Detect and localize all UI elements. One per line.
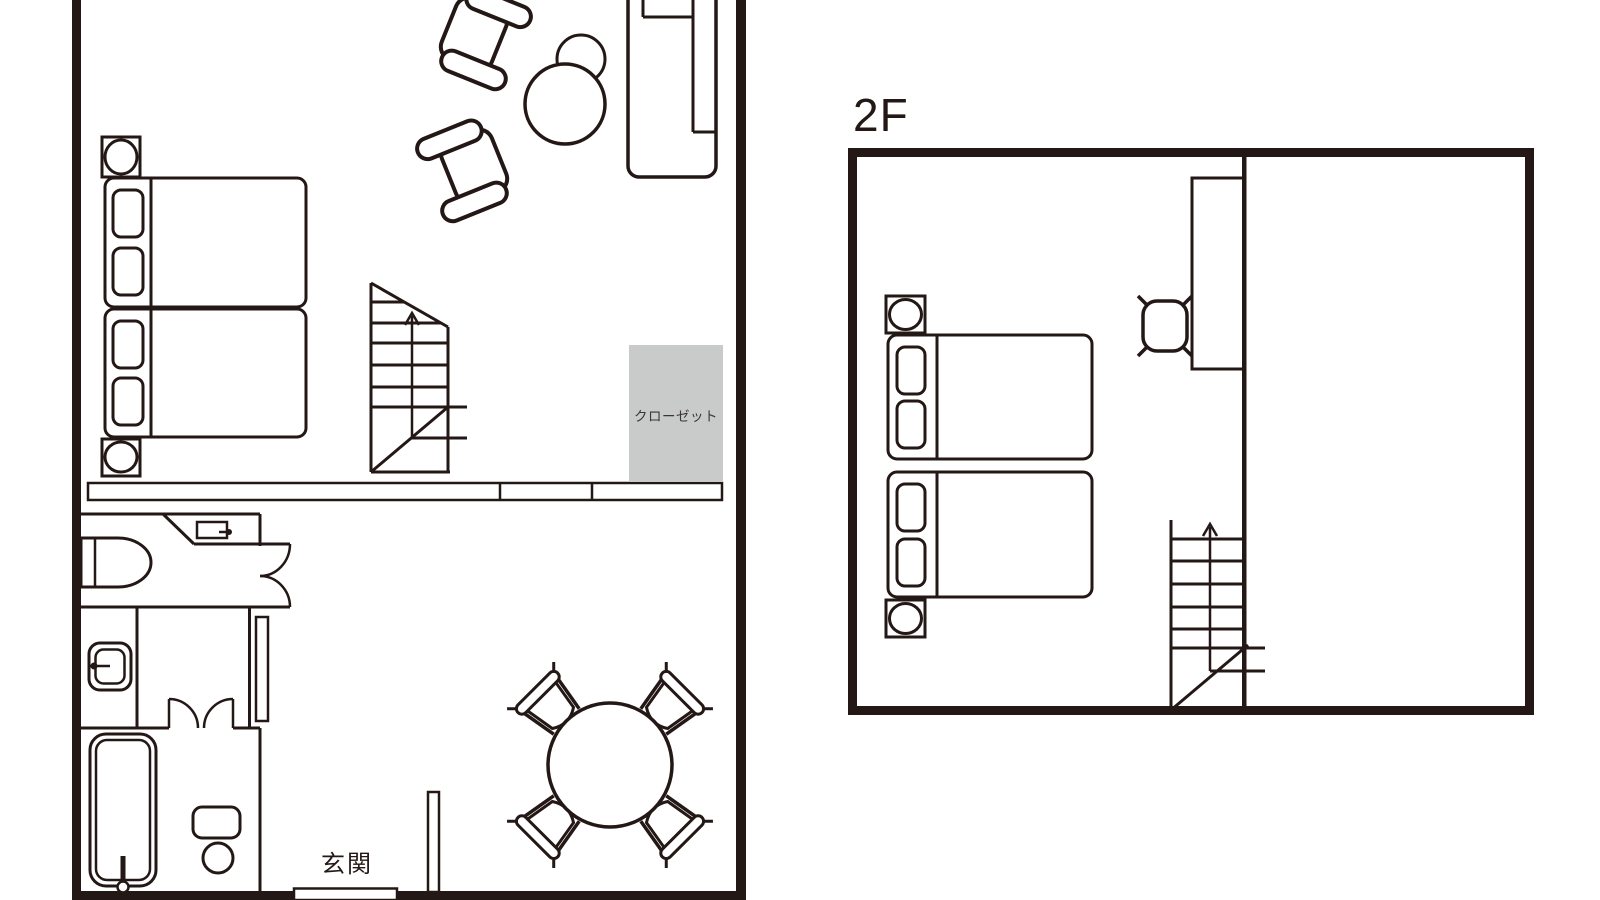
washbasin-icon: [89, 643, 131, 690]
door-swing-arc: [169, 699, 198, 728]
1f-nightstand-1: [102, 137, 140, 177]
double-door-icons: [169, 699, 233, 728]
2f-wall-left: [848, 148, 857, 715]
1f-toilet-room: [80, 514, 290, 607]
floor-1f-plan: クローゼット: [72, 0, 746, 900]
2f-nightstand-1: [886, 296, 925, 333]
1f-nightstand-2: [102, 439, 140, 476]
dining-table: [548, 703, 672, 827]
lamp-icon: [890, 300, 922, 330]
1f-washroom: [80, 607, 268, 728]
door-swing-arc: [204, 699, 233, 728]
door-swing-arc: [260, 544, 290, 576]
lamp-icon: [890, 604, 922, 634]
1f-side-table: [525, 35, 605, 144]
bathtub-icon: [90, 734, 156, 893]
1f-armchair-1: [432, 0, 534, 92]
2f-staircase-up: [1171, 520, 1265, 710]
sliding-door: [256, 617, 268, 721]
2f-wall-top: [848, 148, 1534, 157]
2f-desk-chair: [1138, 296, 1192, 356]
2f-bed-2: [888, 472, 1092, 597]
1f-sofa: [628, 0, 716, 177]
1f-wall-left: [72, 0, 81, 900]
floor-plan-canvas: クローゼット: [0, 0, 1600, 900]
closet-label: クローゼット: [634, 409, 718, 424]
floor-2f-title: 2F: [853, 89, 909, 141]
small-sink-icon: [197, 522, 232, 538]
1f-counter: [88, 483, 722, 500]
partition-stub: [428, 792, 439, 892]
1f-wall-right: [736, 0, 746, 900]
2f-desk: [1192, 178, 1244, 369]
1f-dining-set: [507, 662, 713, 868]
1f-wall-bottom: [72, 891, 746, 900]
1f-entrance: 玄関: [294, 792, 439, 900]
floor-2f-plan: 2F: [848, 89, 1534, 715]
1f-bed-1: [105, 178, 306, 307]
door-swing-arc: [260, 576, 290, 607]
2f-nightstand-2: [886, 600, 925, 637]
2f-wall-right: [1525, 148, 1534, 715]
bath-stool-and-bowl-icon: [193, 807, 240, 873]
corner-partition: [163, 514, 194, 544]
1f-staircase-up: [371, 283, 467, 472]
lamp-icon: [105, 442, 137, 472]
1f-bed-2: [105, 309, 306, 437]
2f-wall-bottom: [848, 706, 1534, 715]
lamp-icon: [105, 140, 137, 174]
2f-bed-1: [888, 335, 1092, 459]
toilet-bowl-icon: [81, 538, 151, 587]
1f-armchair-2: [414, 115, 516, 224]
stairs-up-arrow-icon: [405, 313, 419, 438]
entrance-step: [294, 889, 397, 900]
1f-bathroom: [90, 728, 260, 893]
entrance-label: 玄関: [321, 851, 373, 878]
1f-closet: クローゼット: [629, 345, 723, 482]
